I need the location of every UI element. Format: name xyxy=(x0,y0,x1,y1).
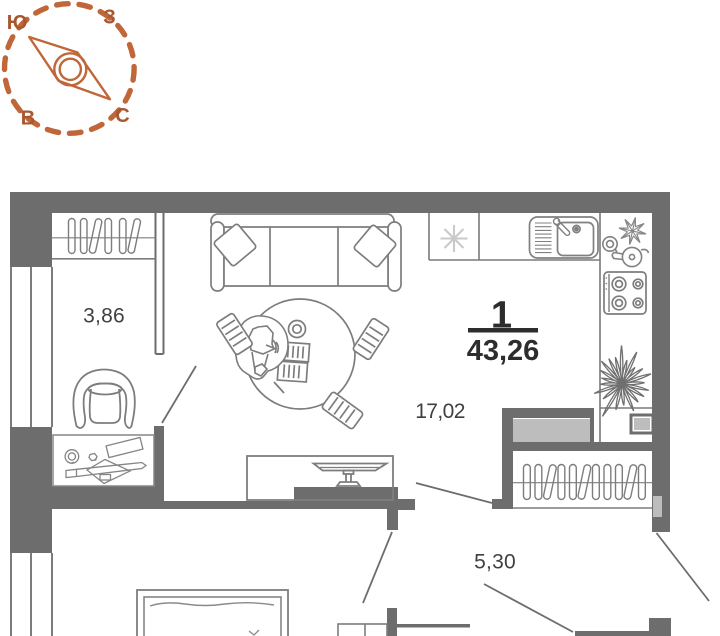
svg-text:З: З xyxy=(103,7,116,29)
svg-text:43,26: 43,26 xyxy=(467,335,540,367)
svg-text:С: С xyxy=(115,105,129,127)
svg-text:5,30: 5,30 xyxy=(474,551,516,574)
svg-text:17,02: 17,02 xyxy=(415,400,465,423)
svg-text:Ю: Ю xyxy=(7,12,28,34)
svg-text:3,86: 3,86 xyxy=(83,305,125,328)
svg-text:В: В xyxy=(21,108,35,130)
